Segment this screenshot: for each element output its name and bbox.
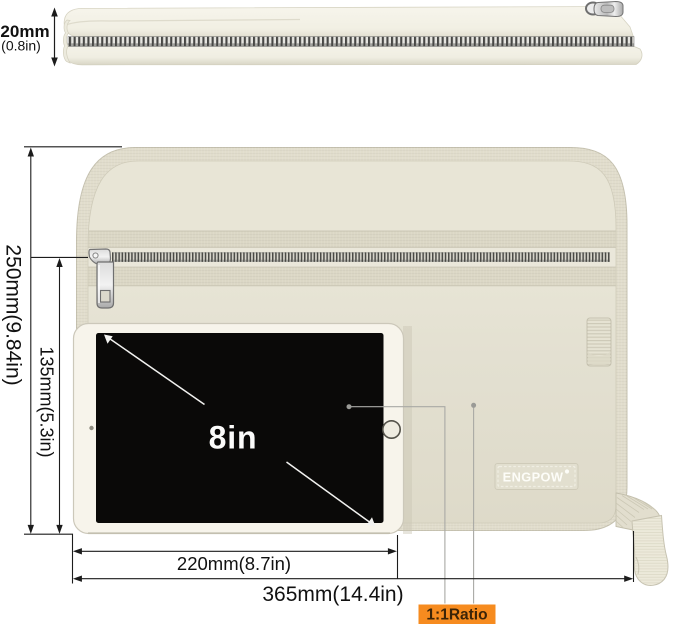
svg-text:ENGPOW: ENGPOW [503,470,564,485]
svg-text:250mm(9.84in): 250mm(9.84in) [2,244,25,385]
svg-text:135mm(5.3in): 135mm(5.3in) [37,346,57,457]
svg-text:8in: 8in [209,420,258,456]
svg-text:220mm(8.7in): 220mm(8.7in) [177,553,291,574]
svg-text:(0.8in): (0.8in) [1,38,41,54]
svg-text:1:1Ratio: 1:1Ratio [426,607,487,624]
svg-text:365mm(14.4in): 365mm(14.4in) [262,583,403,606]
